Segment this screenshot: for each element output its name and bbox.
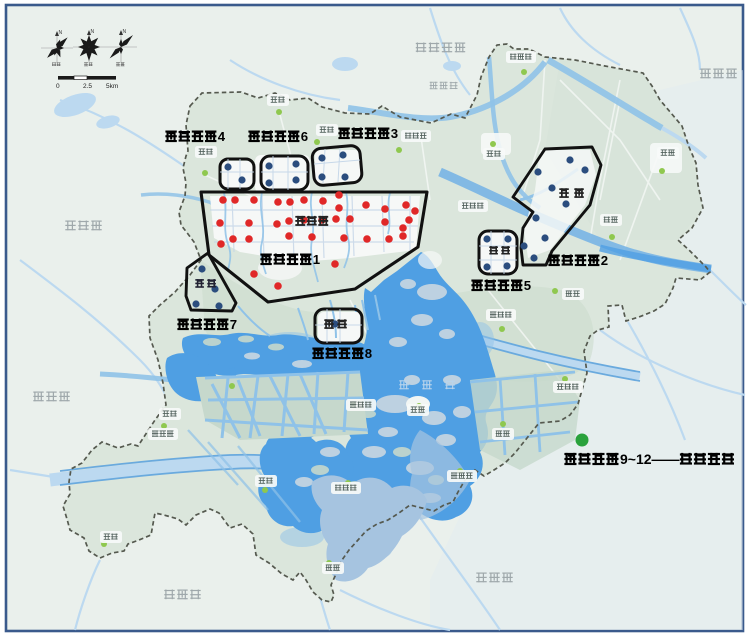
- svg-text:N: N: [123, 29, 127, 35]
- svg-text:3: 3: [391, 126, 398, 141]
- svg-text:—: —: [666, 451, 680, 467]
- svg-text:0: 0: [56, 83, 60, 90]
- svg-text:5km: 5km: [106, 83, 118, 90]
- svg-text:5: 5: [524, 278, 531, 293]
- svg-text:4: 4: [218, 129, 226, 144]
- svg-text:—: —: [652, 451, 666, 467]
- svg-text:2: 2: [601, 253, 608, 268]
- svg-text:N: N: [91, 29, 95, 35]
- svg-text:2: 2: [644, 451, 652, 467]
- svg-text:N: N: [59, 30, 63, 36]
- svg-text:~: ~: [628, 451, 636, 467]
- svg-text:1: 1: [313, 252, 320, 267]
- svg-text:2.5: 2.5: [83, 83, 92, 90]
- svg-text:8: 8: [365, 346, 372, 361]
- svg-text:7: 7: [230, 317, 237, 332]
- svg-text:6: 6: [301, 129, 308, 144]
- svg-text:9: 9: [620, 451, 628, 467]
